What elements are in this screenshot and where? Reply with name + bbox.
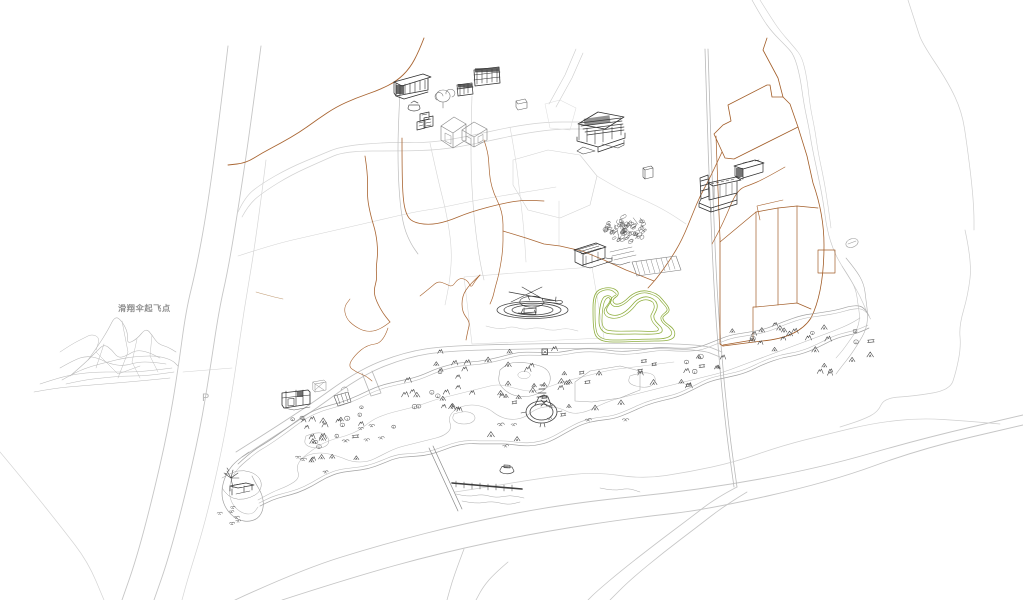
svg-text:P: P <box>202 392 209 404</box>
svg-text:滑翔伞起飞点: 滑翔伞起飞点 <box>118 303 171 313</box>
